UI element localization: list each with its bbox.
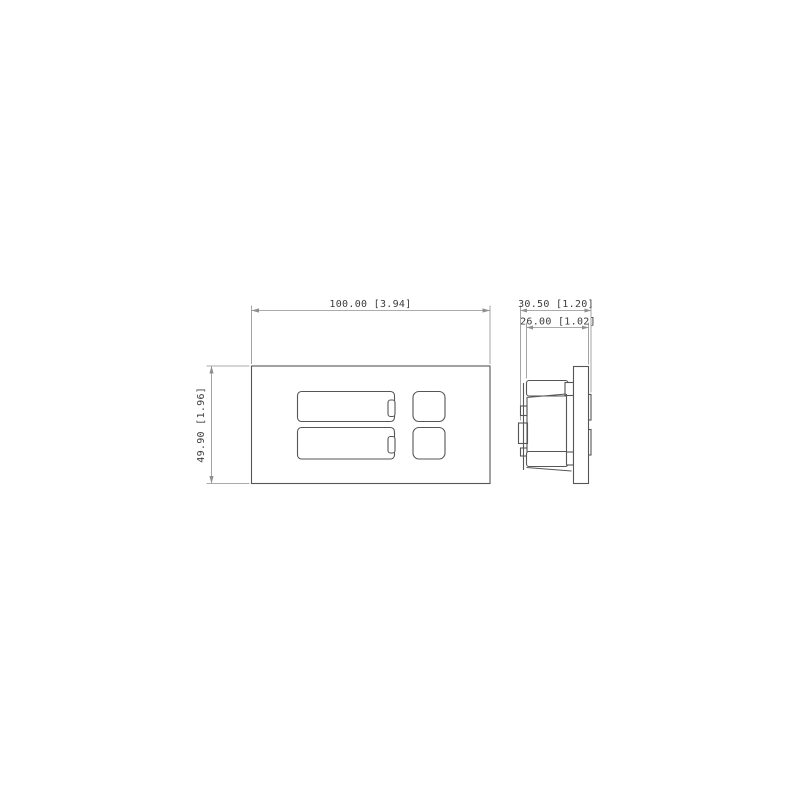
rocker-button-bottom-notch xyxy=(388,437,395,454)
rocker-button-top xyxy=(298,392,395,422)
side-view xyxy=(519,367,592,484)
drawing-canvas: 100.00 [3.94] 49.90 [1.96] 30.50 [1.20] … xyxy=(0,0,800,800)
front-height-dimension: 49.90 [1.96] xyxy=(196,366,250,484)
rocker-button-top-notch xyxy=(388,400,395,417)
front-height-label: 49.90 [1.96] xyxy=(196,387,207,463)
body-bottom-slant xyxy=(527,468,572,472)
side-total-depth-label: 30.50 [1.20] xyxy=(518,299,594,310)
lower-connector-block xyxy=(567,452,574,465)
bottom-latch xyxy=(527,452,569,467)
square-button-bottom xyxy=(413,428,445,460)
front-view xyxy=(252,366,491,484)
rocker-button-bottom xyxy=(298,428,395,460)
faceplate-front xyxy=(252,366,491,484)
arrowhead-icon xyxy=(252,308,260,312)
square-button-top xyxy=(413,392,445,422)
technical-drawing: 100.00 [3.94] 49.90 [1.96] 30.50 [1.20] … xyxy=(0,0,800,800)
arrowhead-icon xyxy=(209,366,213,374)
arrowhead-icon xyxy=(483,308,491,312)
upper-connector-block xyxy=(565,383,574,396)
top-latch xyxy=(527,381,569,397)
arrowhead-icon xyxy=(209,476,213,484)
side-insert-depth-label: 26.00 [1.02] xyxy=(520,317,596,328)
front-width-dimension: 100.00 [3.94] xyxy=(252,299,491,364)
faceplate-side xyxy=(574,367,589,484)
front-width-label: 100.00 [3.94] xyxy=(329,299,411,310)
